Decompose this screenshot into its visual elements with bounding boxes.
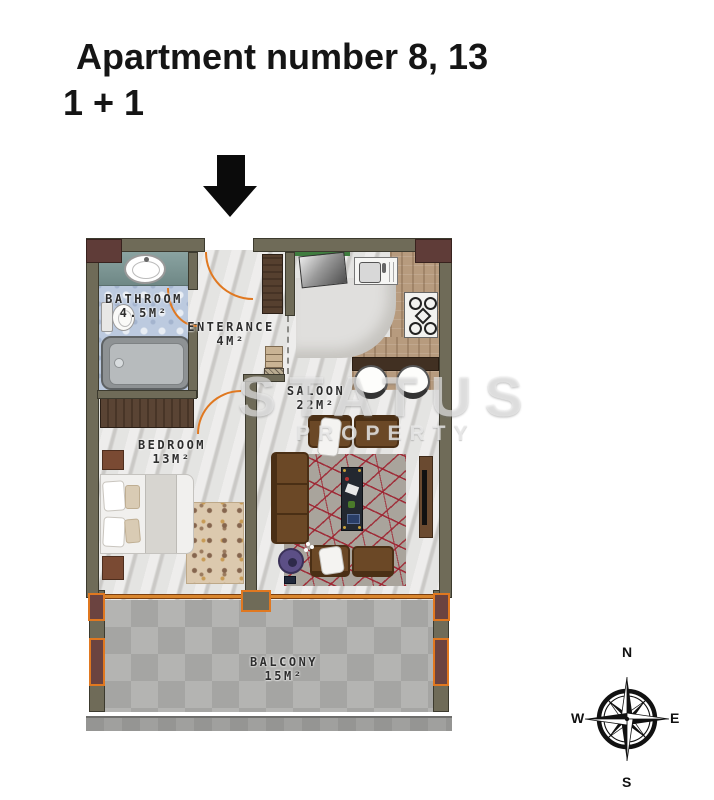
- bathtub: [101, 336, 190, 390]
- corner-block: [88, 593, 105, 621]
- bedroom-rug: [186, 502, 244, 584]
- balcony-window: [99, 594, 245, 599]
- sofa: [271, 452, 309, 544]
- nightstand: [102, 450, 124, 470]
- compass-east-label: E: [670, 710, 679, 726]
- compass-south-label: S: [622, 774, 631, 790]
- stove: [404, 292, 438, 338]
- watermark-property: PROPERTY: [296, 422, 476, 446]
- pouf-chair: [278, 548, 304, 574]
- wardrobe: [100, 396, 194, 428]
- tv-stand: [419, 456, 433, 538]
- nightstand: [102, 556, 124, 580]
- page-subtitle: 1 + 1: [63, 82, 144, 124]
- pillar-accent: [433, 638, 449, 686]
- wall-bathroom: [188, 252, 198, 290]
- book: [284, 576, 296, 584]
- coffee-table: [341, 467, 363, 531]
- wall-hall-kitchen: [285, 252, 295, 316]
- corner-block: [415, 239, 452, 263]
- pillar-accent: [89, 638, 105, 686]
- kitchen-sink: [354, 257, 398, 285]
- decor-dots: [306, 542, 310, 546]
- fridge: [298, 252, 347, 289]
- balcony-window: [269, 594, 439, 599]
- compass-west-label: W: [571, 710, 584, 726]
- wall-left: [86, 238, 99, 598]
- room-label-entrance: ENTERANCE 4M²: [187, 320, 275, 348]
- page: Apartment number 8, 13 1 + 1: [0, 0, 714, 800]
- throw-blanket: [318, 545, 345, 575]
- compass-rose: N S W E: [557, 649, 697, 789]
- bed: [100, 474, 194, 554]
- room-label-bathroom: BATHROOM 4.5M²: [105, 292, 183, 320]
- floor-plan: BATHROOM 4.5M² ENTERANCE 4M² SALOON 22M²…: [88, 238, 450, 729]
- page-title: Apartment number 8, 13: [76, 36, 488, 78]
- room-label-balcony: BALCONY 15M²: [250, 655, 318, 683]
- wall-bedroom-top: [97, 390, 197, 399]
- bathroom-sink: [124, 254, 166, 284]
- compass-north-label: N: [622, 644, 632, 660]
- corner-block: [433, 593, 450, 621]
- room-label-bedroom: BEDROOM 13M²: [138, 438, 206, 466]
- balcony-pillar-center: [241, 590, 271, 612]
- hall-closet: [262, 254, 283, 314]
- balcony-edge-strip: [86, 716, 452, 731]
- watermark-status: STATUS: [238, 364, 536, 430]
- corner-block: [86, 239, 122, 263]
- armchair: [352, 546, 394, 577]
